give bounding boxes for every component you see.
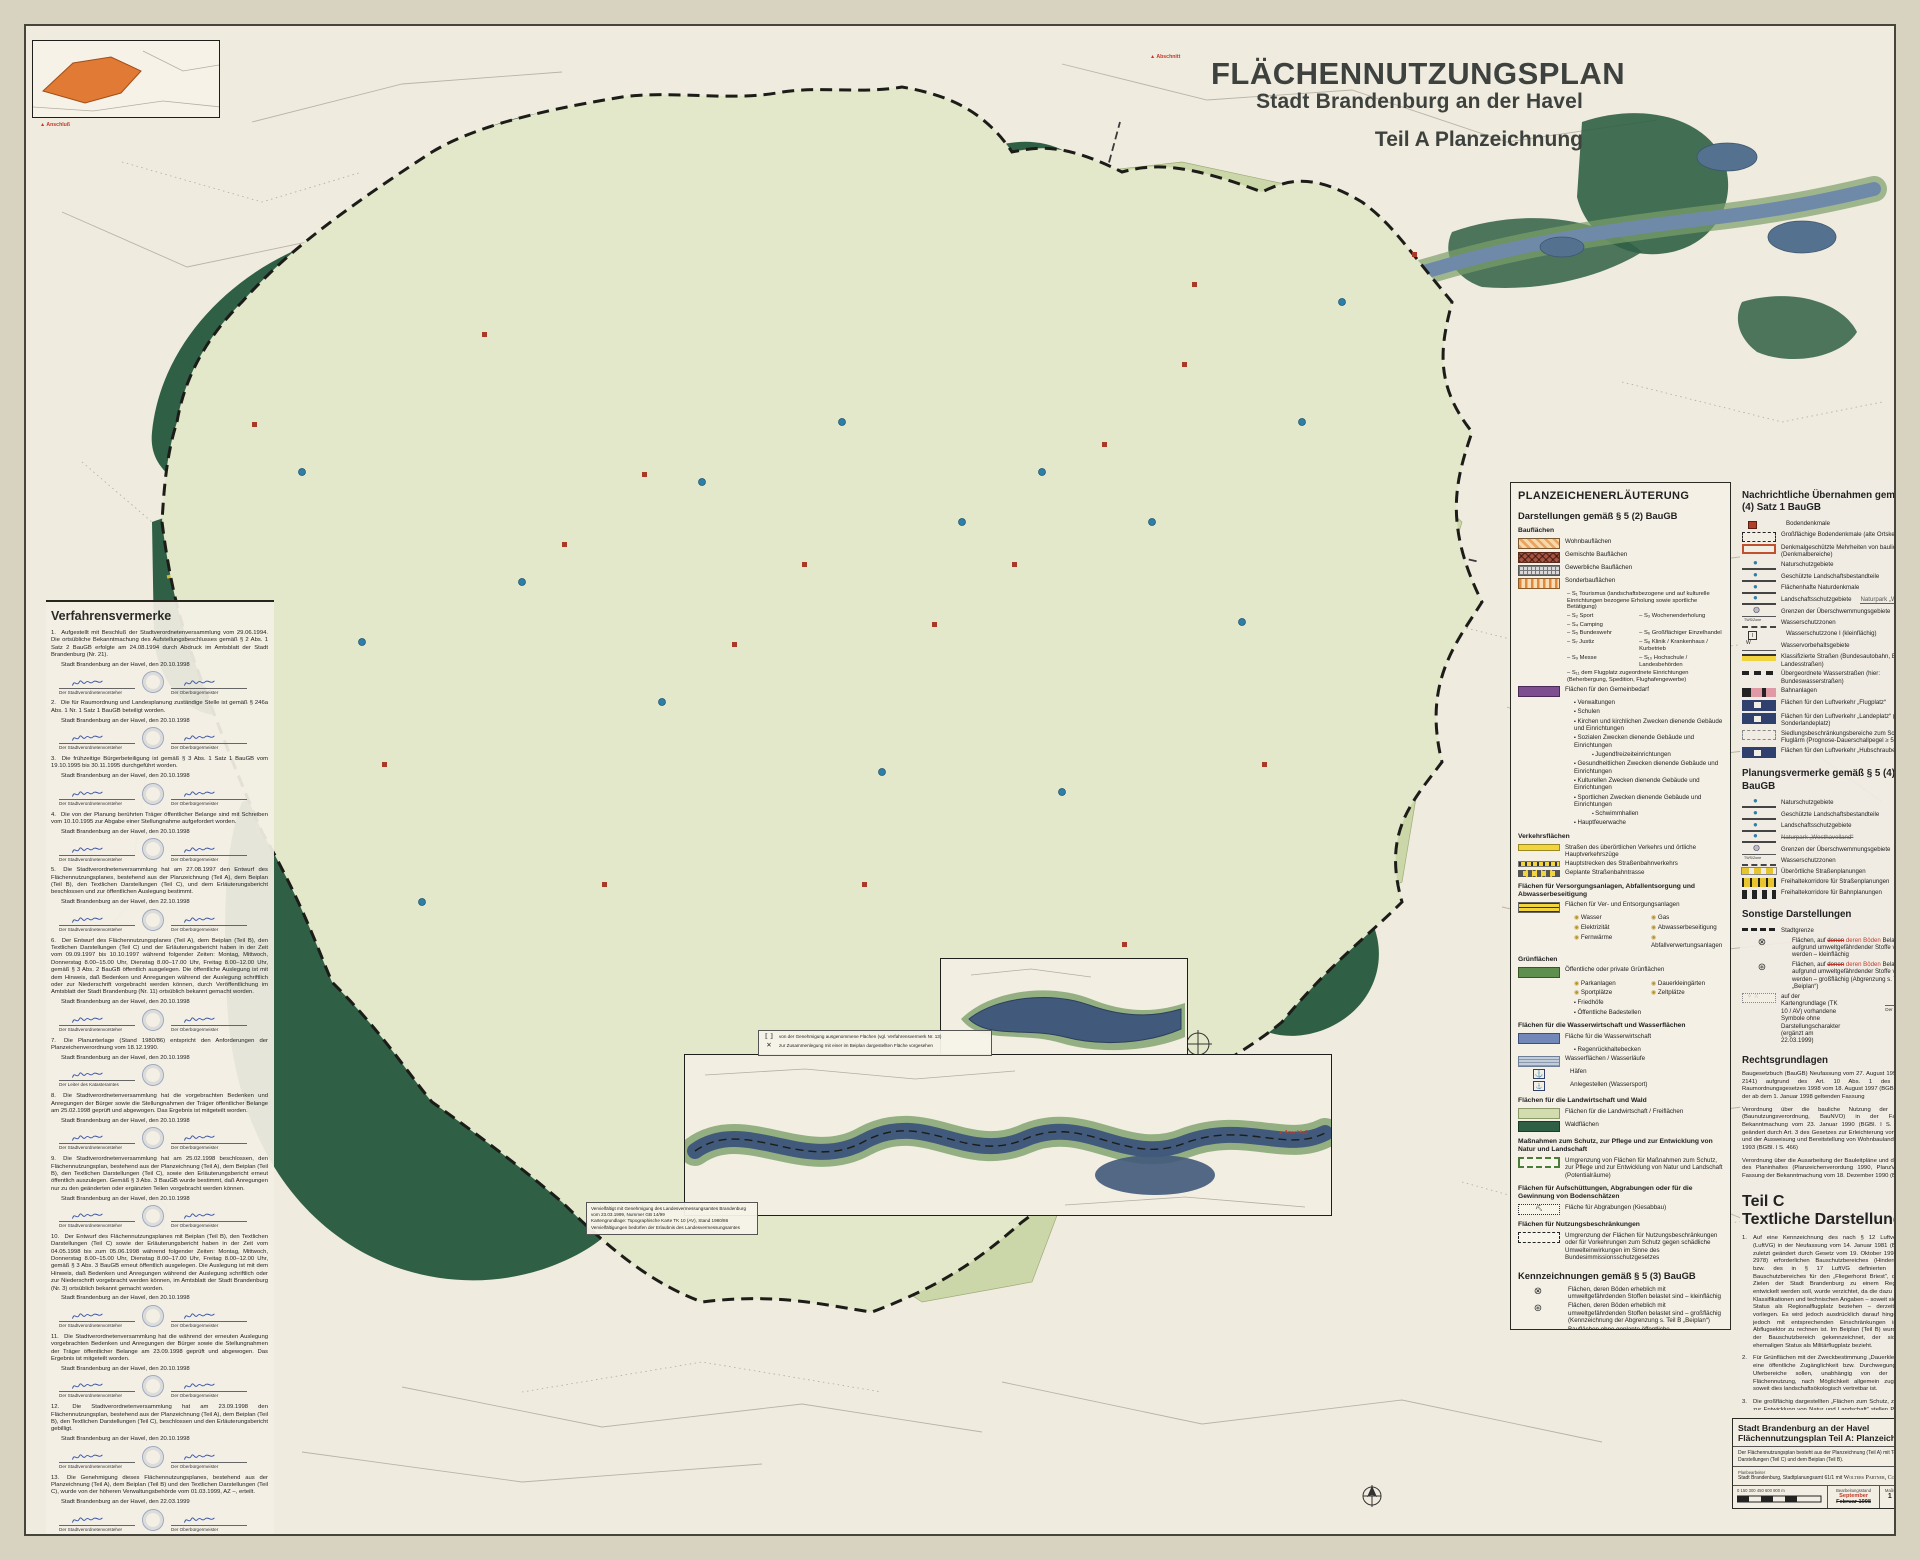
item-text: Die Stadtverordnetenversammlung hat die … [51, 1093, 268, 1114]
right-column-label: Überörtliche Straßenplanungen [1781, 868, 1866, 875]
titleblock-plan: Flächennutzungsplan Teil A: Planzeichnun… [1738, 1433, 1896, 1443]
legend-row: Häfen [1518, 1068, 1723, 1079]
right-column-signatures: Der Stadtverordnetenvorsteher Der Oberbü… [1885, 996, 1896, 1013]
verfahrensvermerk-item: 8. Die Stadtverordnetenversammlung hat d… [51, 1093, 268, 1151]
legend-row: Kulturellen Zwecken dienende Gebäude und… [1574, 777, 1723, 792]
legend-label: Öffentliche oder private Grünflächen [1565, 966, 1664, 973]
legend-label: Geplante Straßenbahntrasse [1565, 869, 1644, 876]
right-column-label: Flächen, auf denen deren Böden Belastung… [1792, 961, 1896, 991]
right-column-label: Flächenhafte Naturdenkmale [1781, 584, 1859, 591]
legend-label: Flächen für die Landwirtschaft / Freiflä… [1565, 1108, 1683, 1115]
legend-row: Flächen für Ver- und Entsorgungsanlagen [1518, 901, 1723, 913]
legend-label-2: – S₁₀ Hochschule / Landesbehörden [1639, 655, 1723, 669]
right-column-label: Naturschutzgebiete [1781, 799, 1834, 806]
signature-icon [59, 1514, 115, 1525]
reproduction-note-line: Vervielfältigungen bedürfen der Erlaubni… [591, 1225, 753, 1231]
right-column-row: Landschaftsschutzgebiete [1742, 822, 1896, 832]
signature-left: Der Stadtverordnetenvorsteher [59, 1210, 135, 1229]
right-column-label: Geschützte Landschaftsbestandteile [1781, 573, 1879, 580]
right-column-symbol [1742, 620, 1776, 628]
right-column-row: Flächen, auf denen deren Böden Belastung… [1742, 937, 1896, 959]
right-column-symbol [1742, 688, 1776, 697]
legend-row: Schulen [1574, 708, 1723, 716]
stamp-icon [141, 907, 166, 932]
legend-row: Wohnbauflächen [1518, 538, 1723, 550]
legend-label: Sportlichen Zwecken dienende Gebäude und… [1574, 794, 1701, 809]
legend-label: Grünflächen [1518, 956, 1557, 963]
stamp-icon [141, 1303, 166, 1328]
legend-label: Darstellungen gemäß § 5 (2) BauGB [1518, 510, 1677, 521]
legend-row: Fläche für die Wasserwirtschaft [1518, 1033, 1723, 1045]
legend-label: Wasser [1574, 914, 1646, 922]
signature-role-left: Der Stadtverordnetenvorsteher [59, 1321, 135, 1329]
right-column-label: Planungsvermerke gemäß § 5 (4) Satz 2 Ba… [1742, 768, 1896, 791]
right-column-row: Überörtliche Straßenplanungen [1742, 868, 1896, 875]
signature-icon [59, 1380, 115, 1391]
signature-role-left: Der Stadtverordnetenvorsteher [59, 1525, 135, 1533]
legend-label: Jugendfreizeiteinrichtungen [1592, 751, 1671, 758]
right-column-row: Großflächige Bodendenkmale (alte Ortsker… [1742, 531, 1896, 542]
right-column-symbol [1756, 937, 1768, 949]
stamp-icon [141, 781, 166, 806]
legend-label: Straßen des überörtlichen Verkehrs und ö… [1565, 844, 1723, 859]
signature-right: Der Oberbürgermeister [171, 677, 247, 696]
item-date: Stadt Brandenburg an der Havel, den 20.1… [61, 1118, 268, 1125]
inset-map-river [684, 1054, 1332, 1216]
legend-label: Hauptstrecken des Straßenbahnverkehrs [1565, 860, 1678, 867]
right-column-symbol [1742, 671, 1776, 675]
item-date: Stadt Brandenburg an der Havel, den 20.1… [61, 829, 268, 836]
map-label-anschluss-2: ▲ Anschluß [1278, 1130, 1308, 1136]
legend-swatch [1518, 1204, 1560, 1215]
approval-symbol: ✕ [763, 1043, 775, 1050]
item-number: 12. [51, 1404, 59, 1410]
legend-label: Friedhöfe [1574, 999, 1604, 1006]
legend-label: Schwimmhallen [1592, 810, 1639, 817]
right-column-symbol [1742, 700, 1776, 711]
signature-role-left: Der Stadtverordnetenvorsteher [59, 1462, 135, 1470]
stamp-icon [141, 1063, 166, 1088]
signature-icon [171, 1210, 227, 1221]
legend-row: Öffentliche Badestellen [1574, 1009, 1723, 1017]
legend-swatch [1518, 538, 1560, 549]
titleblock-description: Der Flächennutzungsplan besteht aus der … [1733, 1447, 1896, 1467]
right-column-row: Flächen für den Luftverkehr „Hubschraube… [1742, 747, 1896, 759]
signature-icon [171, 788, 227, 799]
rechtsgrundlagen-list: Baugesetzbuch (BauGB) Neufassung vom 27.… [1742, 1071, 1896, 1181]
legend-row: Jugendfreizeiteinrichtungen [1592, 751, 1723, 758]
signature-icon [171, 914, 227, 925]
signature-right: Der Oberbürgermeister [171, 1014, 247, 1033]
legend-swatch [1533, 1081, 1545, 1091]
item-text: Die Stadtverordnetenversammlung hat am 2… [51, 1404, 268, 1432]
right-column-symbol [1742, 596, 1776, 605]
right-column-symbol [1742, 878, 1776, 887]
legend-row: Flächen, deren Böden erheblich mit umwel… [1518, 1286, 1723, 1301]
locator-inset-drawing [33, 41, 220, 118]
item-text: Die Stadtverordnetenversammlung hat am 2… [51, 1156, 268, 1192]
approval-text: zur Zusammenlegung mit einer im Beiplan … [779, 1043, 933, 1050]
signature-role-right: Der Oberbürgermeister [171, 688, 247, 696]
legend-label: Bauflächen ohne geplante öffentliche Sch… [1568, 1326, 1723, 1330]
naturpark-note: Naturpark „Westhavelland“ [1860, 596, 1896, 604]
right-column-label: Großflächige Bodendenkmale (alte Ortsker… [1781, 531, 1896, 538]
right-column-row: Naturschutzgebiete [1742, 799, 1896, 809]
item-date: Stadt Brandenburg an der Havel, den 20.1… [61, 1295, 268, 1302]
signature-role-right: Der Oberbürgermeister [171, 1143, 247, 1151]
legend-label-2: – S₈ Klinik / Krankenhaus / Kurbetrieb [1639, 639, 1723, 653]
signature-right: Der Oberbürgermeister [171, 914, 247, 933]
signature-icon [171, 1451, 227, 1462]
legend-heading: PLANZEICHENERLÄUTERUNG [1518, 490, 1723, 502]
teil-c-paragraph: 2. Für Grünflächen mit der Zweckbestimmu… [1742, 1355, 1896, 1393]
legend-label: – S₁ Tourismus (landschaftsbezogene und … [1567, 591, 1710, 611]
signature-right: Der Oberbürgermeister [171, 1310, 247, 1329]
legend-row: – S₁ Tourismus (landschaftsbezogene und … [1567, 591, 1723, 612]
signature-icon [171, 1514, 227, 1525]
legend-row: Regenrückhaltebecken [1574, 1046, 1723, 1054]
signature-role-left: Der Stadtverordnetenvorsteher [59, 1025, 135, 1033]
legend-row: – S₉ Messe – S₁₀ Hochschule / Landesbehö… [1567, 655, 1723, 669]
item-text: Die für Raumordnung und Landesplanung zu… [51, 700, 268, 713]
item-date: Stadt Brandenburg an der Havel, den 20.1… [61, 1436, 268, 1443]
legend-row: Verwaltungen [1574, 699, 1723, 707]
right-column-label: Naturschutzgebiete [1781, 561, 1834, 568]
right-column-symbol [1742, 642, 1776, 651]
signature-role-left: Der Stadtverordnetenvorsteher [59, 688, 135, 696]
item-text: Aufgestellt mit Beschluß der Stadtverord… [51, 630, 268, 658]
legend-label: Häfen [1570, 1068, 1587, 1075]
signature-left: Der Stadtverordnetenvorsteher [59, 1014, 135, 1033]
legend-label: Kulturellen Zwecken dienende Gebäude und… [1574, 777, 1700, 792]
legend-swatch [1518, 1232, 1560, 1243]
legend-label: Fläche für die Wasserwirtschaft [1565, 1033, 1651, 1040]
rechtsgrundlagen-paragraph: Verordnung über die Ausarbeitung der Bau… [1742, 1158, 1896, 1181]
right-column-symbol [1742, 890, 1776, 899]
signature-role-left: Der Stadtverordnetenvorsteher [59, 925, 135, 933]
signature-right: Der Oberbürgermeister [171, 844, 247, 863]
legend-label: Bauflächen [1518, 527, 1554, 534]
signature-left: Der Leiter des Katasteramtes [59, 1069, 135, 1088]
right-column-label: Landschaftsschutzgebiete [1781, 596, 1851, 603]
item-text: Die Stadtverordnetenversammlung hat am 2… [51, 867, 268, 895]
teil-c-list: 1. Auf eine Kennzeichnung des nach § 12 … [1742, 1235, 1896, 1410]
right-column-label: Wasserschutzzonen [1781, 857, 1836, 864]
right-column-row: Geschützte Landschaftsbestandteile [1742, 573, 1896, 583]
signature-role-right: Der Oberbürgermeister [171, 1221, 247, 1229]
right-column-label: auf der Kartengrundlage (TK 10 / AV) vor… [1781, 993, 1840, 1045]
signature-icon [171, 1310, 227, 1321]
signature-role-right: Der Oberbürgermeister [171, 1025, 247, 1033]
item-number: 6. [51, 938, 56, 944]
right-column-label: Stadtgrenze [1781, 927, 1814, 934]
legend-row: – S₅ Bundeswehr – S₆ Großflächiger Einze… [1567, 630, 1723, 637]
legend-swatch [1518, 552, 1560, 563]
legend-box: PLANZEICHENERLÄUTERUNG Darstellungen gem… [1510, 482, 1731, 1330]
legend-row: Straßen des überörtlichen Verkehrs und ö… [1518, 844, 1723, 859]
legend-row: Schwimmhallen [1592, 810, 1723, 817]
right-column-symbol [1748, 631, 1757, 640]
map-label-anschluss-1: ▲ Anschluß [40, 122, 70, 128]
signature-right: Der Oberbürgermeister [171, 1380, 247, 1399]
verfahrensvermerk-item: 7. Die Planunterlage (Stand 1980/86) ent… [51, 1038, 268, 1089]
page-title: FLÄCHENNUTZUNGSPLAN Stadt Brandenburg an… [1211, 58, 1583, 152]
signature-left: Der Stadtverordnetenvorsteher [59, 732, 135, 751]
right-column: Nachrichtliche Übernahmen gemäß § 5 (4) … [1740, 480, 1896, 1410]
signature-left: Der Stadtverordnetenvorsteher [59, 677, 135, 696]
legend-row: Bauflächen ohne geplante öffentliche Sch… [1518, 1326, 1723, 1330]
signature-role: Der Stadtverordnetenvorsteher [1885, 1005, 1896, 1012]
right-column-label: Flächen für den Luftverkehr „Flugplatz“ [1781, 699, 1886, 706]
legend-row: – S₄ Camping [1567, 622, 1723, 629]
legend-swatch [1518, 967, 1560, 978]
verfahrensvermerk-item: 12. Die Stadtverordnetenversammlung hat … [51, 1404, 268, 1469]
signature-icon [59, 1069, 115, 1080]
right-column-label: Geschützte Landschaftsbestandteile [1781, 811, 1879, 818]
item-date: Stadt Brandenburg an der Havel, den 20.1… [61, 773, 268, 780]
right-column-row: Übergeordnete Wasserstraßen (hier: Bunde… [1742, 670, 1896, 685]
signature-right: Der Oberbürgermeister [171, 1451, 247, 1470]
legend-label: Flächen für die Wasserwirtschaft und Was… [1518, 1022, 1685, 1029]
signature-role-right: Der Oberbürgermeister [171, 799, 247, 807]
signature-icon [171, 677, 227, 688]
right-column-row: Wasservorbehaltsgebiete [1742, 642, 1896, 652]
stamp-icon [141, 1507, 166, 1532]
verfahrensvermerk-item: 9. Die Stadtverordnetenversammlung hat a… [51, 1156, 268, 1229]
legend-row: Sportlichen Zwecken dienende Gebäude und… [1574, 794, 1723, 809]
right-column-symbol [1742, 747, 1776, 758]
right-column-label: Grenzen der Überschwemmungsgebiete [1781, 846, 1890, 853]
right-column-symbol [1742, 834, 1776, 843]
legend-label: Elektrizität [1574, 924, 1646, 932]
right-column-label: Landschaftsschutzgebiete [1781, 822, 1851, 829]
signature-right: Der Oberbürgermeister [171, 1210, 247, 1229]
verfahrensvermerk-item: 1. Aufgestellt mit Beschluß der Stadtver… [51, 630, 268, 695]
legend-label: – S₁₁ dem Flugplatz zugeordnete Einricht… [1567, 670, 1689, 683]
item-date: Stadt Brandenburg an der Havel, den 20.1… [61, 662, 268, 669]
right-column-label: Sonstige Darstellungen [1742, 909, 1851, 920]
item-number: 11. [51, 1334, 59, 1340]
signature-role-right: Der Oberbürgermeister [171, 1321, 247, 1329]
right-column-label: Freihaltekorridore für Bahnplanungen [1781, 889, 1882, 896]
legend-label: Sozialen Zwecken dienende Gebäude und Ei… [1574, 734, 1694, 749]
signature-icon [59, 1310, 115, 1321]
scale-bar [1737, 1494, 1823, 1504]
right-column-row: Wasserschutzzonen [1742, 619, 1896, 628]
right-column-row: Stadtgrenze [1742, 927, 1896, 934]
signature-icon [171, 1014, 227, 1025]
legend-label: Wohnbauflächen [1565, 538, 1611, 545]
right-column-symbol [1756, 962, 1768, 974]
legend-row: Flächen, deren Böden erheblich mit umwel… [1518, 1302, 1723, 1324]
legend-row: Anlegestellen (Wassersport) [1518, 1081, 1723, 1092]
legend-row: Öffentliche oder private Grünflächen [1518, 966, 1723, 978]
item-text: Die Stadtverordnetenversammlung hat die … [51, 1334, 268, 1362]
right-column-list: Nachrichtliche Übernahmen gemäß § 5 (4) … [1742, 490, 1896, 1045]
signature-right: Der Oberbürgermeister [171, 788, 247, 807]
legend-row: – S₂ Sport – S₃ Wochenenderholung [1567, 613, 1723, 620]
legend-row: Kirchen und kirchlichen Zwecken dienende… [1574, 718, 1723, 733]
approval-note-row: ⟦ ⟧ von der Genehmigung ausgenommene Flä… [763, 1034, 987, 1041]
right-column-symbol [1742, 573, 1776, 582]
map-sheet: ▲ Anschluß ▲ Abschnitt ▲ Ansch [0, 0, 1920, 1560]
signature-role-right: Der Oberbürgermeister [171, 855, 247, 863]
legend-row: Sonderbauflächen [1518, 577, 1723, 589]
right-column-row: Flächen für den Luftverkehr „Flugplatz“ [1742, 699, 1896, 711]
signature-role-left: Der Stadtverordnetenvorsteher [59, 799, 135, 807]
legend-swatch [1518, 902, 1560, 913]
right-column-symbol [1742, 858, 1776, 866]
signature-right: Der Oberbürgermeister [171, 1132, 247, 1151]
legend-row: Flächen für Nutzungsbeschränkungen [1518, 1221, 1723, 1229]
legend-row: Friedhöfe [1574, 999, 1723, 1007]
right-column-row: Wasserschutzzone I (kleinflächig) [1742, 630, 1896, 640]
legend-row: Flächen für die Wasserwirtschaft und Was… [1518, 1022, 1723, 1030]
legend-label: Verwaltungen [1574, 699, 1615, 706]
legend-row: Fernwärme Abfallverwertungsanlagen [1574, 934, 1723, 950]
plan-title-line1: FLÄCHENNUTZUNGSPLAN [1211, 58, 1583, 90]
item-text: Die Planunterlage (Stand 1980/86) entspr… [51, 1038, 268, 1051]
legend-label: Gewerbliche Bauflächen [1565, 564, 1632, 571]
legend-label: Flächen für den Gemeinbedarf [1565, 686, 1649, 693]
signature-icon [59, 1014, 115, 1025]
right-column-row: Flächen, auf denen deren Böden Belastung… [1742, 961, 1896, 991]
item-number: 5. [51, 867, 56, 873]
legend-label: Hauptfeuerwache [1574, 819, 1626, 826]
right-column-row: Klassifizierte Straßen (Bundesautobahn, … [1742, 653, 1896, 668]
right-column-row: Geschützte Landschaftsbestandteile [1742, 811, 1896, 821]
teil-c-heading: Teil C Textliche Darstellungen [1742, 1193, 1896, 1230]
right-column-row: Landschaftsschutzgebiete Naturpark „West… [1742, 596, 1896, 606]
signature-icon [59, 844, 115, 855]
legend-swatch [1518, 861, 1560, 867]
verfahrensvermerke-heading: Verfahrensvermerke [51, 609, 268, 623]
right-column-row: Planungsvermerke gemäß § 5 (4) Satz 2 Ba… [1742, 768, 1896, 792]
legend-row: Flächen für Versorgungsanlagen, Abfallen… [1518, 883, 1723, 899]
right-column-row: Bahnanlagen [1742, 687, 1896, 697]
right-column-row: Siedlungsbeschränkungsbereiche zum Schut… [1742, 730, 1896, 745]
title-block: Stadt Brandenburg an der Havel Flächennu… [1732, 1418, 1896, 1509]
right-column-label: Denkmalgeschützte Mehrheiten von baulich… [1781, 544, 1896, 559]
legend-swatch [1518, 1056, 1560, 1067]
signature-icon [171, 1132, 227, 1143]
right-column-row: Freihaltekorridore für Bahnplanungen [1742, 889, 1896, 899]
item-number: 1. [51, 630, 56, 636]
legend-row: Geplante Straßenbahntrasse [1518, 869, 1723, 877]
rechtsgrundlagen-heading: Rechtsgrundlagen [1742, 1055, 1896, 1066]
legend-label: Sonderbauflächen [1565, 577, 1615, 584]
legend-row: Elektrizität Abwasserbeseitigung [1574, 924, 1723, 932]
legend-label: Umgrenzung der Flächen für Nutzungsbesch… [1565, 1232, 1723, 1262]
legend-label: Flächen für die Landwirtschaft und Wald [1518, 1097, 1647, 1104]
verfahrensvermerk-item: 11. Die Stadtverordnetenversammlung hat … [51, 1334, 268, 1399]
right-column-symbol [1742, 713, 1776, 724]
legend-label: Flächen, deren Böden erheblich mit umwel… [1568, 1286, 1723, 1301]
legend-label: Fläche für Abgrabungen (Kiesabbau) [1565, 1204, 1666, 1211]
right-column-label: Flächen für den Luftverkehr „Hubschraube… [1781, 747, 1896, 754]
right-column-row: Naturpark „Westhavelland“ [1742, 834, 1896, 844]
stamp-icon [141, 1203, 166, 1228]
item-date: Stadt Brandenburg an der Havel, den 20.1… [61, 1196, 268, 1203]
legend-row: Verkehrsflächen [1518, 833, 1723, 841]
right-column-symbol [1742, 654, 1776, 661]
verfahrensvermerk-item: 2. Die für Raumordnung und Landesplanung… [51, 700, 268, 751]
right-column-symbol [1742, 799, 1776, 808]
legend-row: Kennzeichnungen gemäß § 5 (3) BauGB [1518, 1270, 1723, 1281]
right-column-symbol [1748, 521, 1757, 529]
legend-label: Flächen für Versorgungsanlagen, Abfallen… [1518, 883, 1695, 898]
legend-swatch [1518, 686, 1560, 697]
legend-label-2: Dauerkleingärten [1651, 980, 1723, 988]
plan-title-line3: Teil A Planzeichnung [1211, 128, 1583, 152]
reproduction-note-box: Vervielfältigt mit Genehmigung des Lande… [586, 1202, 758, 1235]
approval-note-box: ⟦ ⟧ von der Genehmigung ausgenommene Flä… [758, 1030, 992, 1056]
approval-note-row: ✕ zur Zusammenlegung mit einer im Beipla… [763, 1043, 987, 1050]
legend-label-2: – S₆ Großflächiger Einzelhandel [1639, 630, 1723, 637]
item-number: 7. [51, 1038, 56, 1044]
right-column-row: Grenzen der Überschwemmungsgebiete [1742, 608, 1896, 618]
scale-ticks: 0 150 300 450 600 900 m [1737, 1488, 1823, 1493]
verfahrensvermerk-item: 3. Die frühzeitige Bürgerbeteiligung ist… [51, 756, 268, 807]
item-number: 8. [51, 1093, 56, 1099]
legend-label: Fernwärme [1574, 934, 1646, 942]
legend-label: Schulen [1574, 708, 1600, 715]
right-column-symbol [1742, 561, 1776, 570]
legend-row: Hauptfeuerwache [1574, 819, 1723, 827]
right-column-row: Flächenhafte Naturdenkmale [1742, 584, 1896, 594]
item-number: 2. [51, 700, 56, 706]
legend-row: Waldflächen [1518, 1121, 1723, 1133]
legend-swatch [1518, 565, 1560, 576]
signature-icon [59, 1451, 115, 1462]
right-column-label: Flächen für den Luftverkehr „Landeplatz“… [1781, 713, 1896, 728]
right-column-symbol [1742, 532, 1776, 542]
right-column-label: Freihaltekorridore für Straßenplanungen [1781, 878, 1889, 885]
item-date: Stadt Brandenburg an der Havel, den 20.1… [61, 999, 268, 1006]
right-column-label: Wasserschutzzone I (kleinflächig) [1786, 630, 1877, 637]
massstab-value: 1 : 15.000 [1884, 1493, 1896, 1500]
legend-swatch [1518, 1033, 1560, 1044]
right-column-symbol [1742, 868, 1776, 874]
legend-label: Flächen für Ver- und Entsorgungsanlagen [1565, 901, 1680, 908]
teil-c-paragraph: 3. Die großflächig dargestellten „Fläche… [1742, 1399, 1896, 1410]
legend-swatch [1533, 1069, 1545, 1079]
right-column-row: auf der Kartengrundlage (TK 10 / AV) vor… [1742, 993, 1896, 1045]
right-column-label: Naturpark „Westhavelland“ [1781, 834, 1853, 841]
river-inset-drawing [685, 1055, 1332, 1216]
right-column-row: Denkmalgeschützte Mehrheiten von baulich… [1742, 544, 1896, 559]
item-text: Die Genehmigung dieses Flächennutzungspl… [51, 1475, 268, 1496]
item-text: Die von der Planung berührten Träger öff… [51, 812, 268, 825]
signature-icon [59, 677, 115, 688]
right-column-label: Bahnanlagen [1781, 687, 1817, 694]
item-date: Stadt Brandenburg an der Havel, den 22.1… [61, 899, 268, 906]
right-column-row: Nachrichtliche Übernahmen gemäß § 5 (4) … [1742, 490, 1896, 514]
legend-label: Verkehrsflächen [1518, 833, 1570, 840]
signature-icon [171, 1380, 227, 1391]
legend-label: Maßnahmen zum Schutz, zur Pflege und zur… [1518, 1138, 1713, 1153]
legend-row: Bauflächen [1518, 527, 1723, 535]
legend-label: Kirchen und kirchlichen Zwecken dienende… [1574, 718, 1722, 733]
right-column-row: Naturschutzgebiete [1742, 561, 1896, 571]
legend-row: Gemischte Bauflächen [1518, 551, 1723, 563]
signature-role-left: Der Leiter des Katasteramtes [59, 1080, 135, 1088]
legend-label-2: Zeltplätze [1651, 989, 1723, 997]
legend-row: Sportplätze Zeltplätze [1574, 989, 1723, 997]
planbearbeiter-firm: Wolters Partner, Coesfeld [1844, 1475, 1896, 1481]
right-column-symbol [1742, 811, 1776, 820]
item-text: Der Entwurf des Flächennutzungsplanes (T… [51, 938, 268, 996]
